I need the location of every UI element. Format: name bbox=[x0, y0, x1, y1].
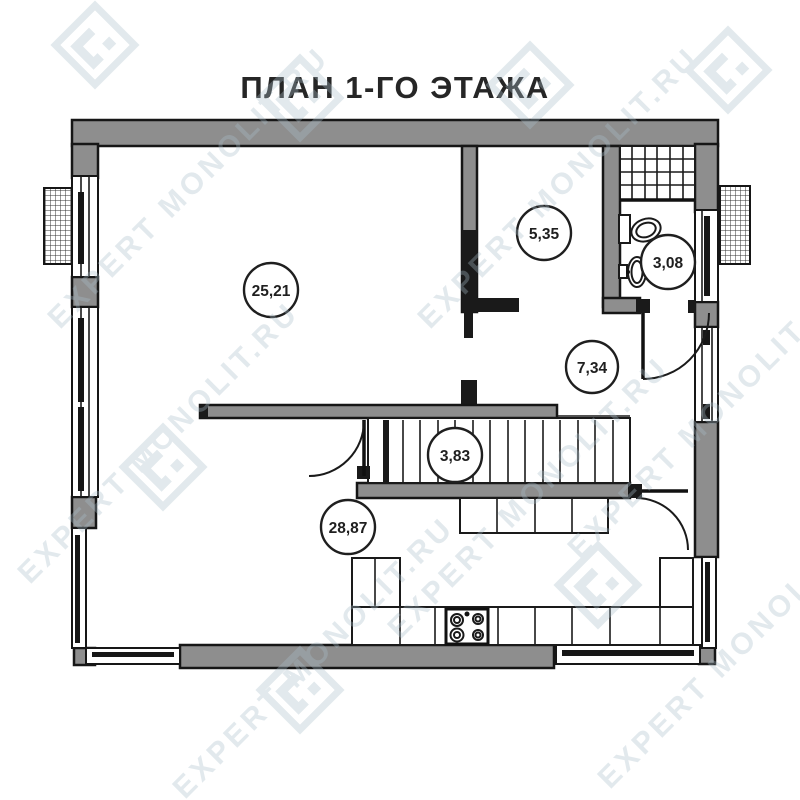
ac-unit-right-icon bbox=[720, 186, 750, 264]
room-area-label: 7,34 bbox=[577, 360, 608, 377]
stove-icon bbox=[446, 609, 488, 644]
door-understairs bbox=[309, 420, 370, 479]
room-area-label: 28,87 bbox=[329, 520, 368, 537]
room-area-badge-hallway: 7,34 bbox=[566, 341, 618, 393]
room-area-label: 25,21 bbox=[252, 283, 291, 300]
svg-text:EXPERT MONOLIT.RU: EXPERT MONOLIT.RU bbox=[12, 296, 306, 590]
window-bottom-left-glazing bbox=[86, 648, 180, 664]
room-area-badge-staircase: 3,83 bbox=[428, 428, 482, 482]
window-bottom-right-glazing bbox=[556, 645, 700, 664]
room-area-label: 3,08 bbox=[653, 255, 684, 272]
floor-plan-page: ПЛАН 1-ГО ЭТАЖА bbox=[0, 0, 800, 800]
room-area-label: 3,83 bbox=[440, 448, 471, 465]
shower-tile-area bbox=[620, 146, 695, 200]
door-hinge bbox=[636, 299, 650, 313]
room-area-badge-kitchen: 28,87 bbox=[321, 500, 375, 554]
room-area-badge-bathroom: 3,08 bbox=[641, 235, 695, 289]
window-right-bottom-glazing bbox=[702, 557, 716, 648]
floor-plan-drawing: ПЛАН 1-ГО ЭТАЖА bbox=[0, 0, 800, 800]
window-right-upper bbox=[695, 210, 718, 302]
window-left-lower bbox=[72, 307, 98, 497]
ac-unit-left-icon bbox=[44, 188, 72, 264]
stair-break-line bbox=[383, 420, 389, 483]
